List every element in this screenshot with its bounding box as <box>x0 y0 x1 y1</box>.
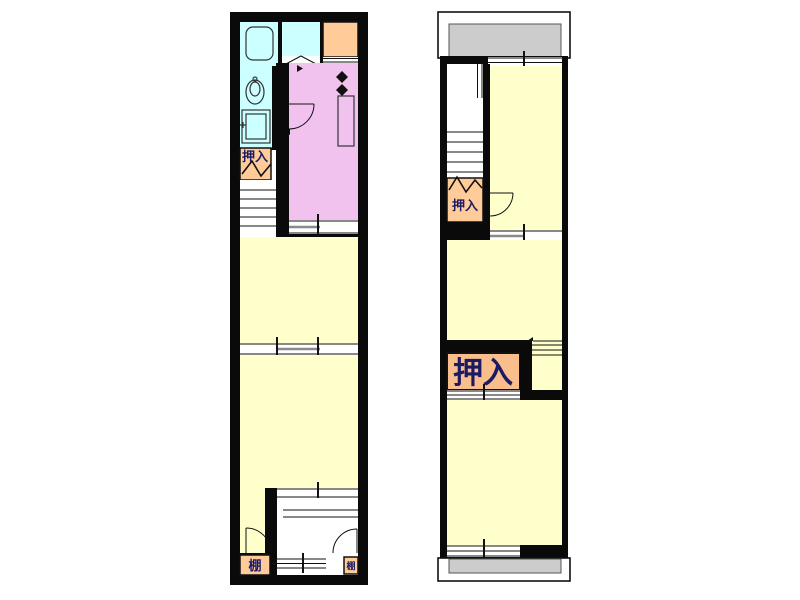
interior-wall <box>440 222 490 240</box>
washroom <box>282 22 320 65</box>
shelf-right: 棚 <box>344 557 358 574</box>
interior-wall <box>265 488 277 555</box>
closet-label: 押入 <box>452 198 478 214</box>
shelf-label: 棚 <box>346 560 355 572</box>
room-1f-lower <box>240 355 358 488</box>
staircase-1f <box>240 180 276 237</box>
room-2f-middle <box>447 240 562 340</box>
bathroom <box>240 22 278 66</box>
closet-label: 押入 <box>242 149 268 165</box>
floor-plan-canvas: 押入 <box>0 0 800 600</box>
interior-wall <box>440 340 532 353</box>
closet-oshiire-1f: 押入 <box>240 148 271 180</box>
room-1f-middle <box>240 237 358 343</box>
floor-2-plan: 押入 押入 <box>438 12 570 581</box>
shelf-label: 棚 <box>248 558 261 574</box>
room-2f-lower <box>447 400 562 545</box>
closet-side-passage <box>527 337 562 390</box>
floor-plan-drawing: 押入 <box>0 0 800 600</box>
interior-wall <box>483 64 490 240</box>
room-2f-upper <box>490 66 562 230</box>
balcony-bottom <box>438 558 570 581</box>
staircase-2f <box>447 64 483 178</box>
closet-oshiire-2f-upper: 押入 <box>447 177 483 222</box>
kitchen <box>285 63 358 220</box>
closet-top <box>323 22 358 66</box>
interior-wall <box>520 340 532 390</box>
interior-wall <box>276 63 289 237</box>
shelf-left: 棚 <box>240 555 270 575</box>
toilet-room <box>240 66 272 148</box>
floor-1-plan: 押入 <box>230 12 368 585</box>
balcony-top <box>438 12 570 58</box>
